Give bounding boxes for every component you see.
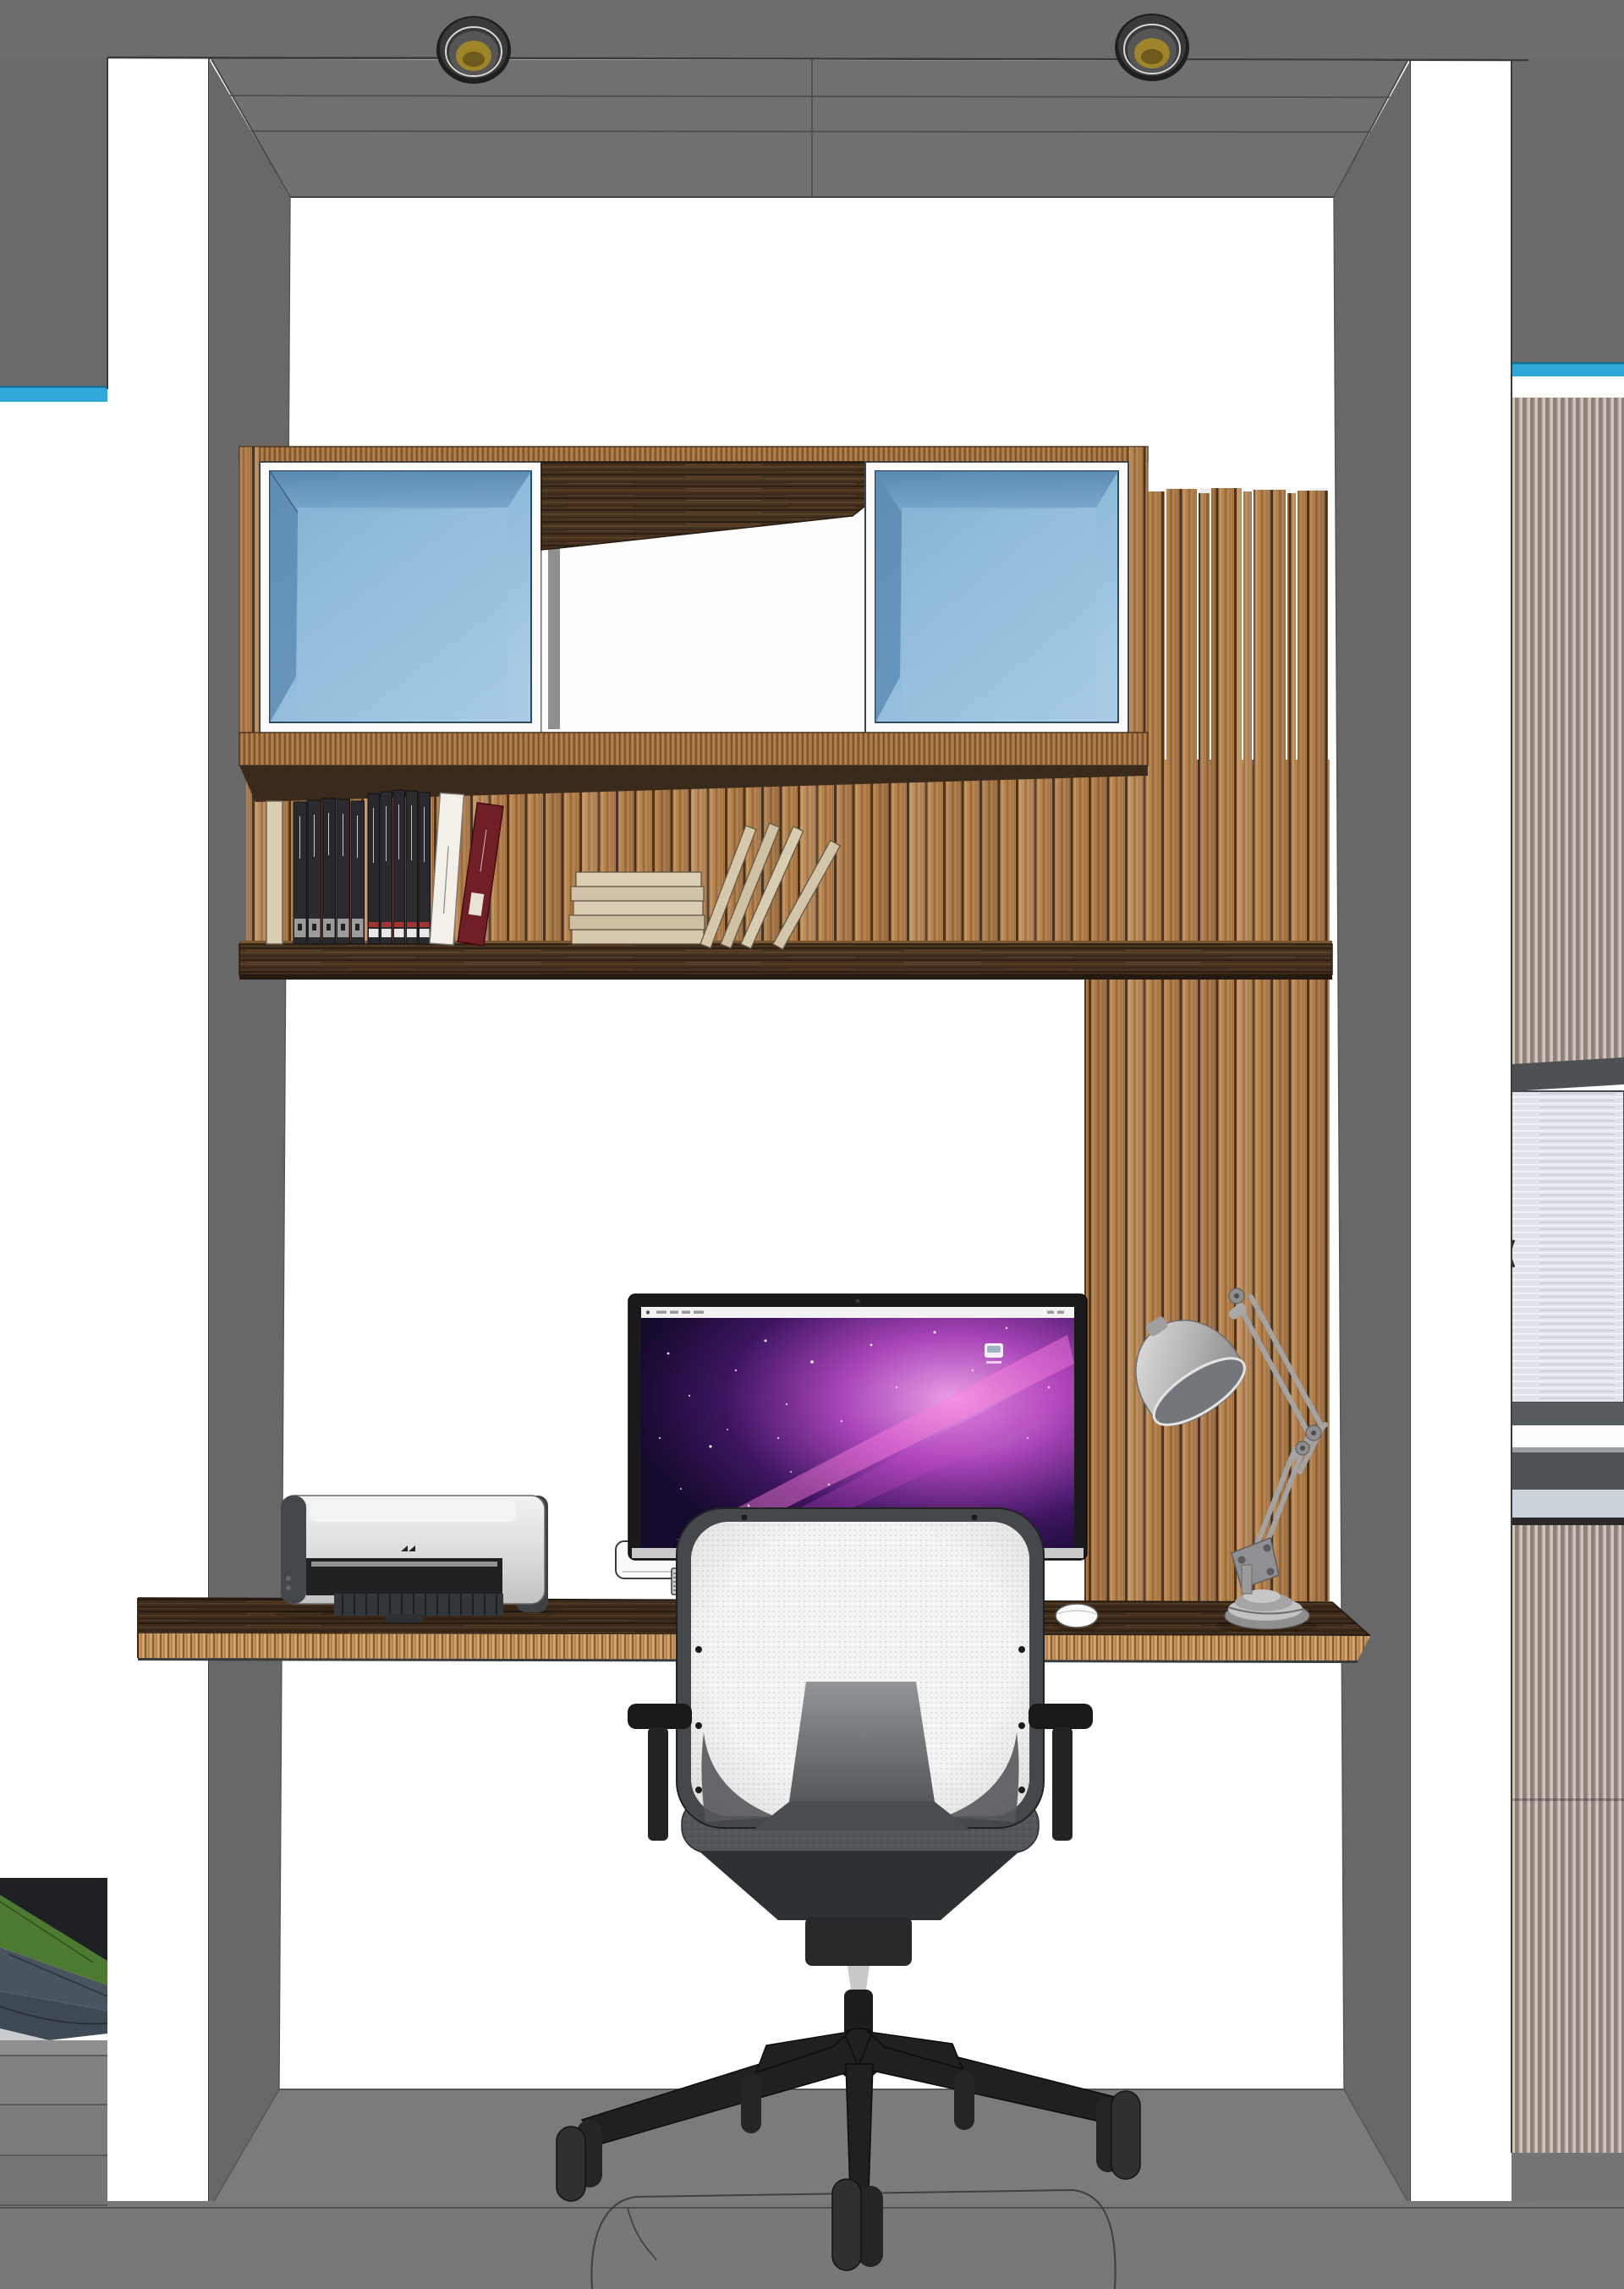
left-outer-wall	[0, 58, 107, 387]
menu-bar	[641, 1307, 1074, 1318]
chair-mechanism	[805, 1917, 912, 1966]
apple-mouse	[1054, 1604, 1100, 1632]
flat-book-stack	[569, 872, 705, 944]
chair-back-panel	[789, 1682, 935, 1802]
cabinet-right-side	[1128, 447, 1148, 766]
cabinet-left-side	[239, 447, 260, 766]
open-niche-middle	[541, 462, 865, 733]
right-hallway-strip	[1511, 398, 1624, 2289]
apple-menu-icon	[646, 1310, 650, 1314]
right-dark-band-2	[1512, 1402, 1624, 1425]
alcove-left-wall	[209, 59, 290, 2201]
black-book-set-2	[368, 790, 431, 944]
webcam-icon	[856, 1299, 860, 1304]
render-canvas	[0, 0, 1624, 2289]
wall-cabinet	[239, 447, 1148, 802]
glass-door-right	[865, 462, 1128, 734]
black-book-set-1	[294, 799, 365, 944]
striped-screen-right-lower	[1512, 1525, 1624, 2153]
accent-stripe-right	[1512, 364, 1624, 376]
right-column	[1410, 61, 1512, 2201]
front-floor	[0, 2201, 1624, 2289]
cabinet-bottom-strip	[239, 733, 1148, 766]
left-column	[107, 58, 209, 2205]
slat-fins-right	[1148, 488, 1328, 766]
alcove-right-wall	[1334, 61, 1410, 2201]
right-white-band	[1512, 1425, 1624, 1447]
right-light-band	[1512, 1490, 1624, 1518]
alcove-floor	[214, 2089, 1407, 2201]
right-outer-wall	[1512, 58, 1624, 364]
ceiling-soffit	[211, 59, 1407, 197]
book-shelf	[239, 941, 1332, 980]
accent-stripe-left	[0, 387, 107, 402]
gas-lift	[848, 1966, 870, 1990]
stair-steps	[0, 2040, 107, 2205]
garden-view	[0, 1878, 107, 2040]
frosted-cabinet-right	[1512, 1091, 1624, 1402]
right-dark-band-3	[1512, 1452, 1624, 1490]
ceiling-spotlight-right	[1115, 14, 1189, 81]
cabinet-top-strip	[239, 447, 1148, 462]
upper-wall-band	[0, 0, 1624, 59]
printer-button	[286, 1585, 291, 1590]
striped-screen-right-upper	[1512, 398, 1624, 1067]
printer	[275, 1496, 554, 1622]
cream-book	[266, 801, 283, 944]
printer-button	[286, 1576, 291, 1581]
glass-door-left	[260, 462, 541, 734]
ceiling-spotlight-left	[436, 16, 511, 84]
chair-seat-pan	[699, 1851, 1020, 1920]
chair-mesh-back	[677, 1508, 1044, 1831]
